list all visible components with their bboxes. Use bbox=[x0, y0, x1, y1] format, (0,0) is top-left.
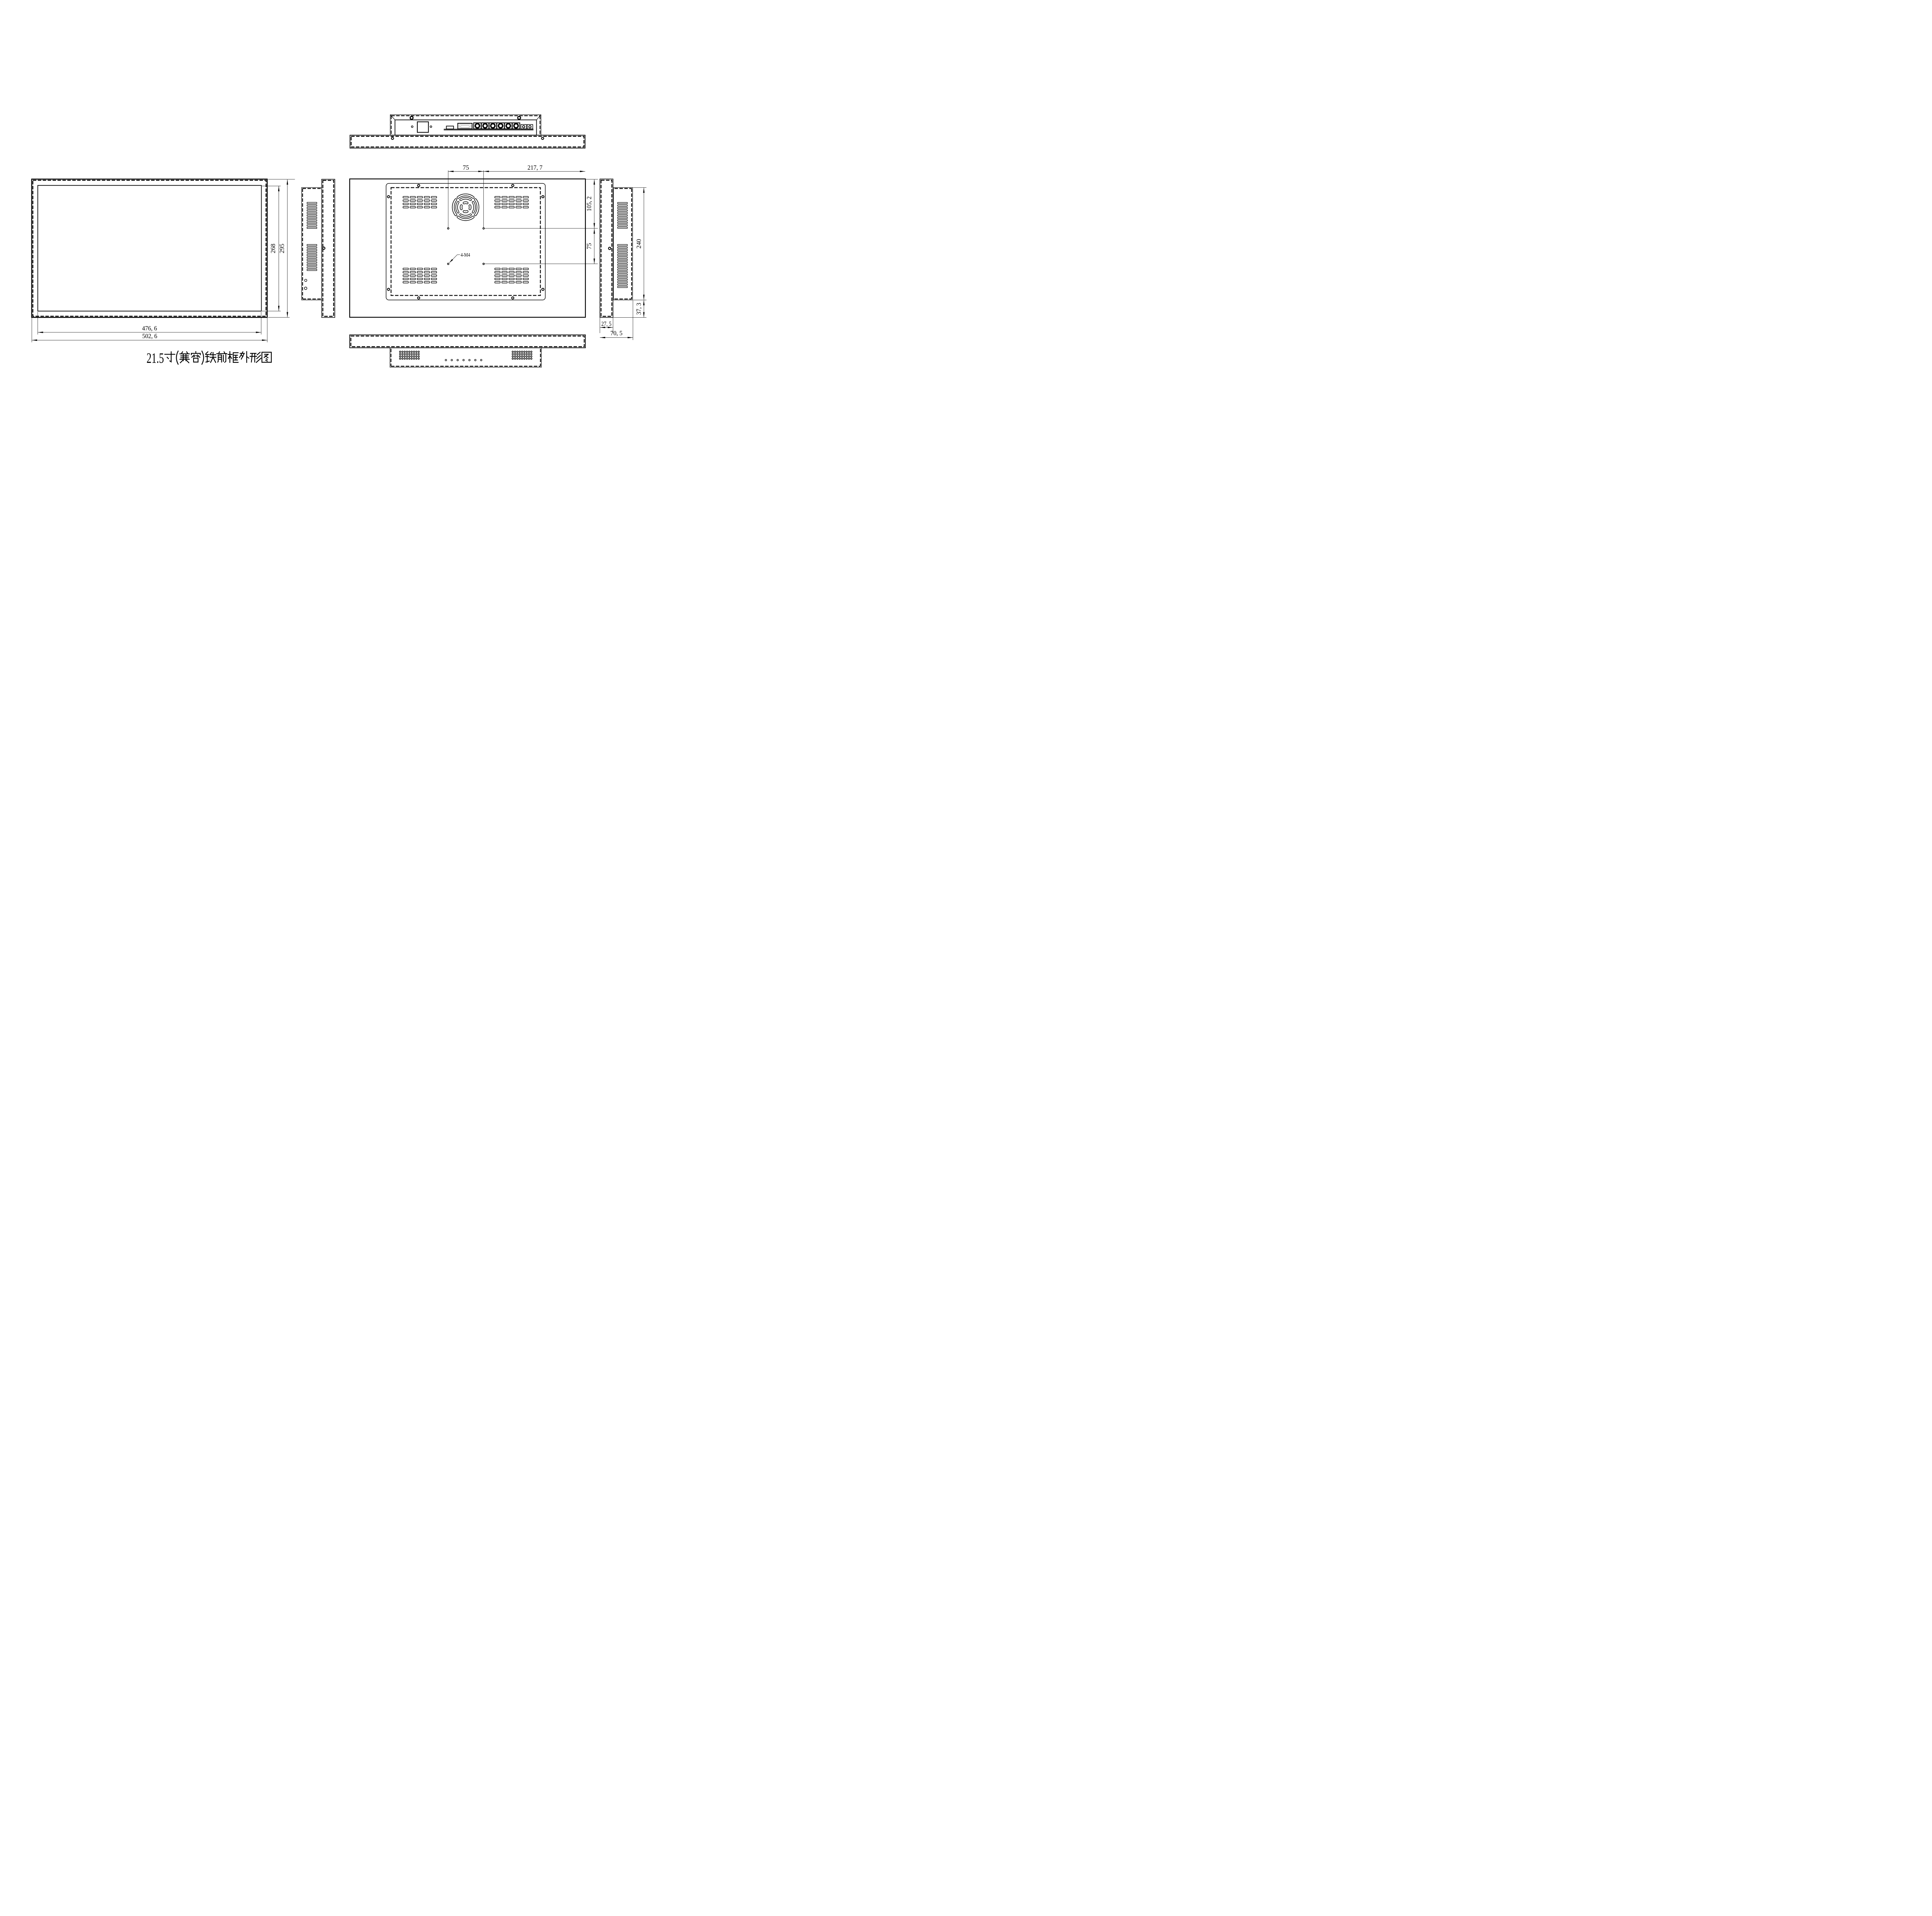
svg-text:70, 5: 70, 5 bbox=[611, 330, 622, 337]
svg-text:4-M4: 4-M4 bbox=[461, 252, 470, 258]
svg-text:268: 268 bbox=[269, 244, 277, 254]
svg-text:502, 6: 502, 6 bbox=[142, 332, 157, 340]
svg-text:27, 5: 27, 5 bbox=[601, 321, 611, 327]
svg-text:240: 240 bbox=[635, 239, 642, 248]
svg-text:37, 3: 37, 3 bbox=[635, 303, 642, 315]
svg-text:295: 295 bbox=[278, 244, 286, 254]
svg-text:476, 6: 476, 6 bbox=[142, 325, 157, 332]
svg-text:75: 75 bbox=[463, 164, 469, 171]
svg-text:105, 2: 105, 2 bbox=[585, 196, 593, 211]
svg-text:21.5: 21.5 bbox=[146, 351, 164, 366]
svg-text:217, 7: 217, 7 bbox=[527, 164, 543, 171]
svg-text:75: 75 bbox=[585, 243, 593, 249]
